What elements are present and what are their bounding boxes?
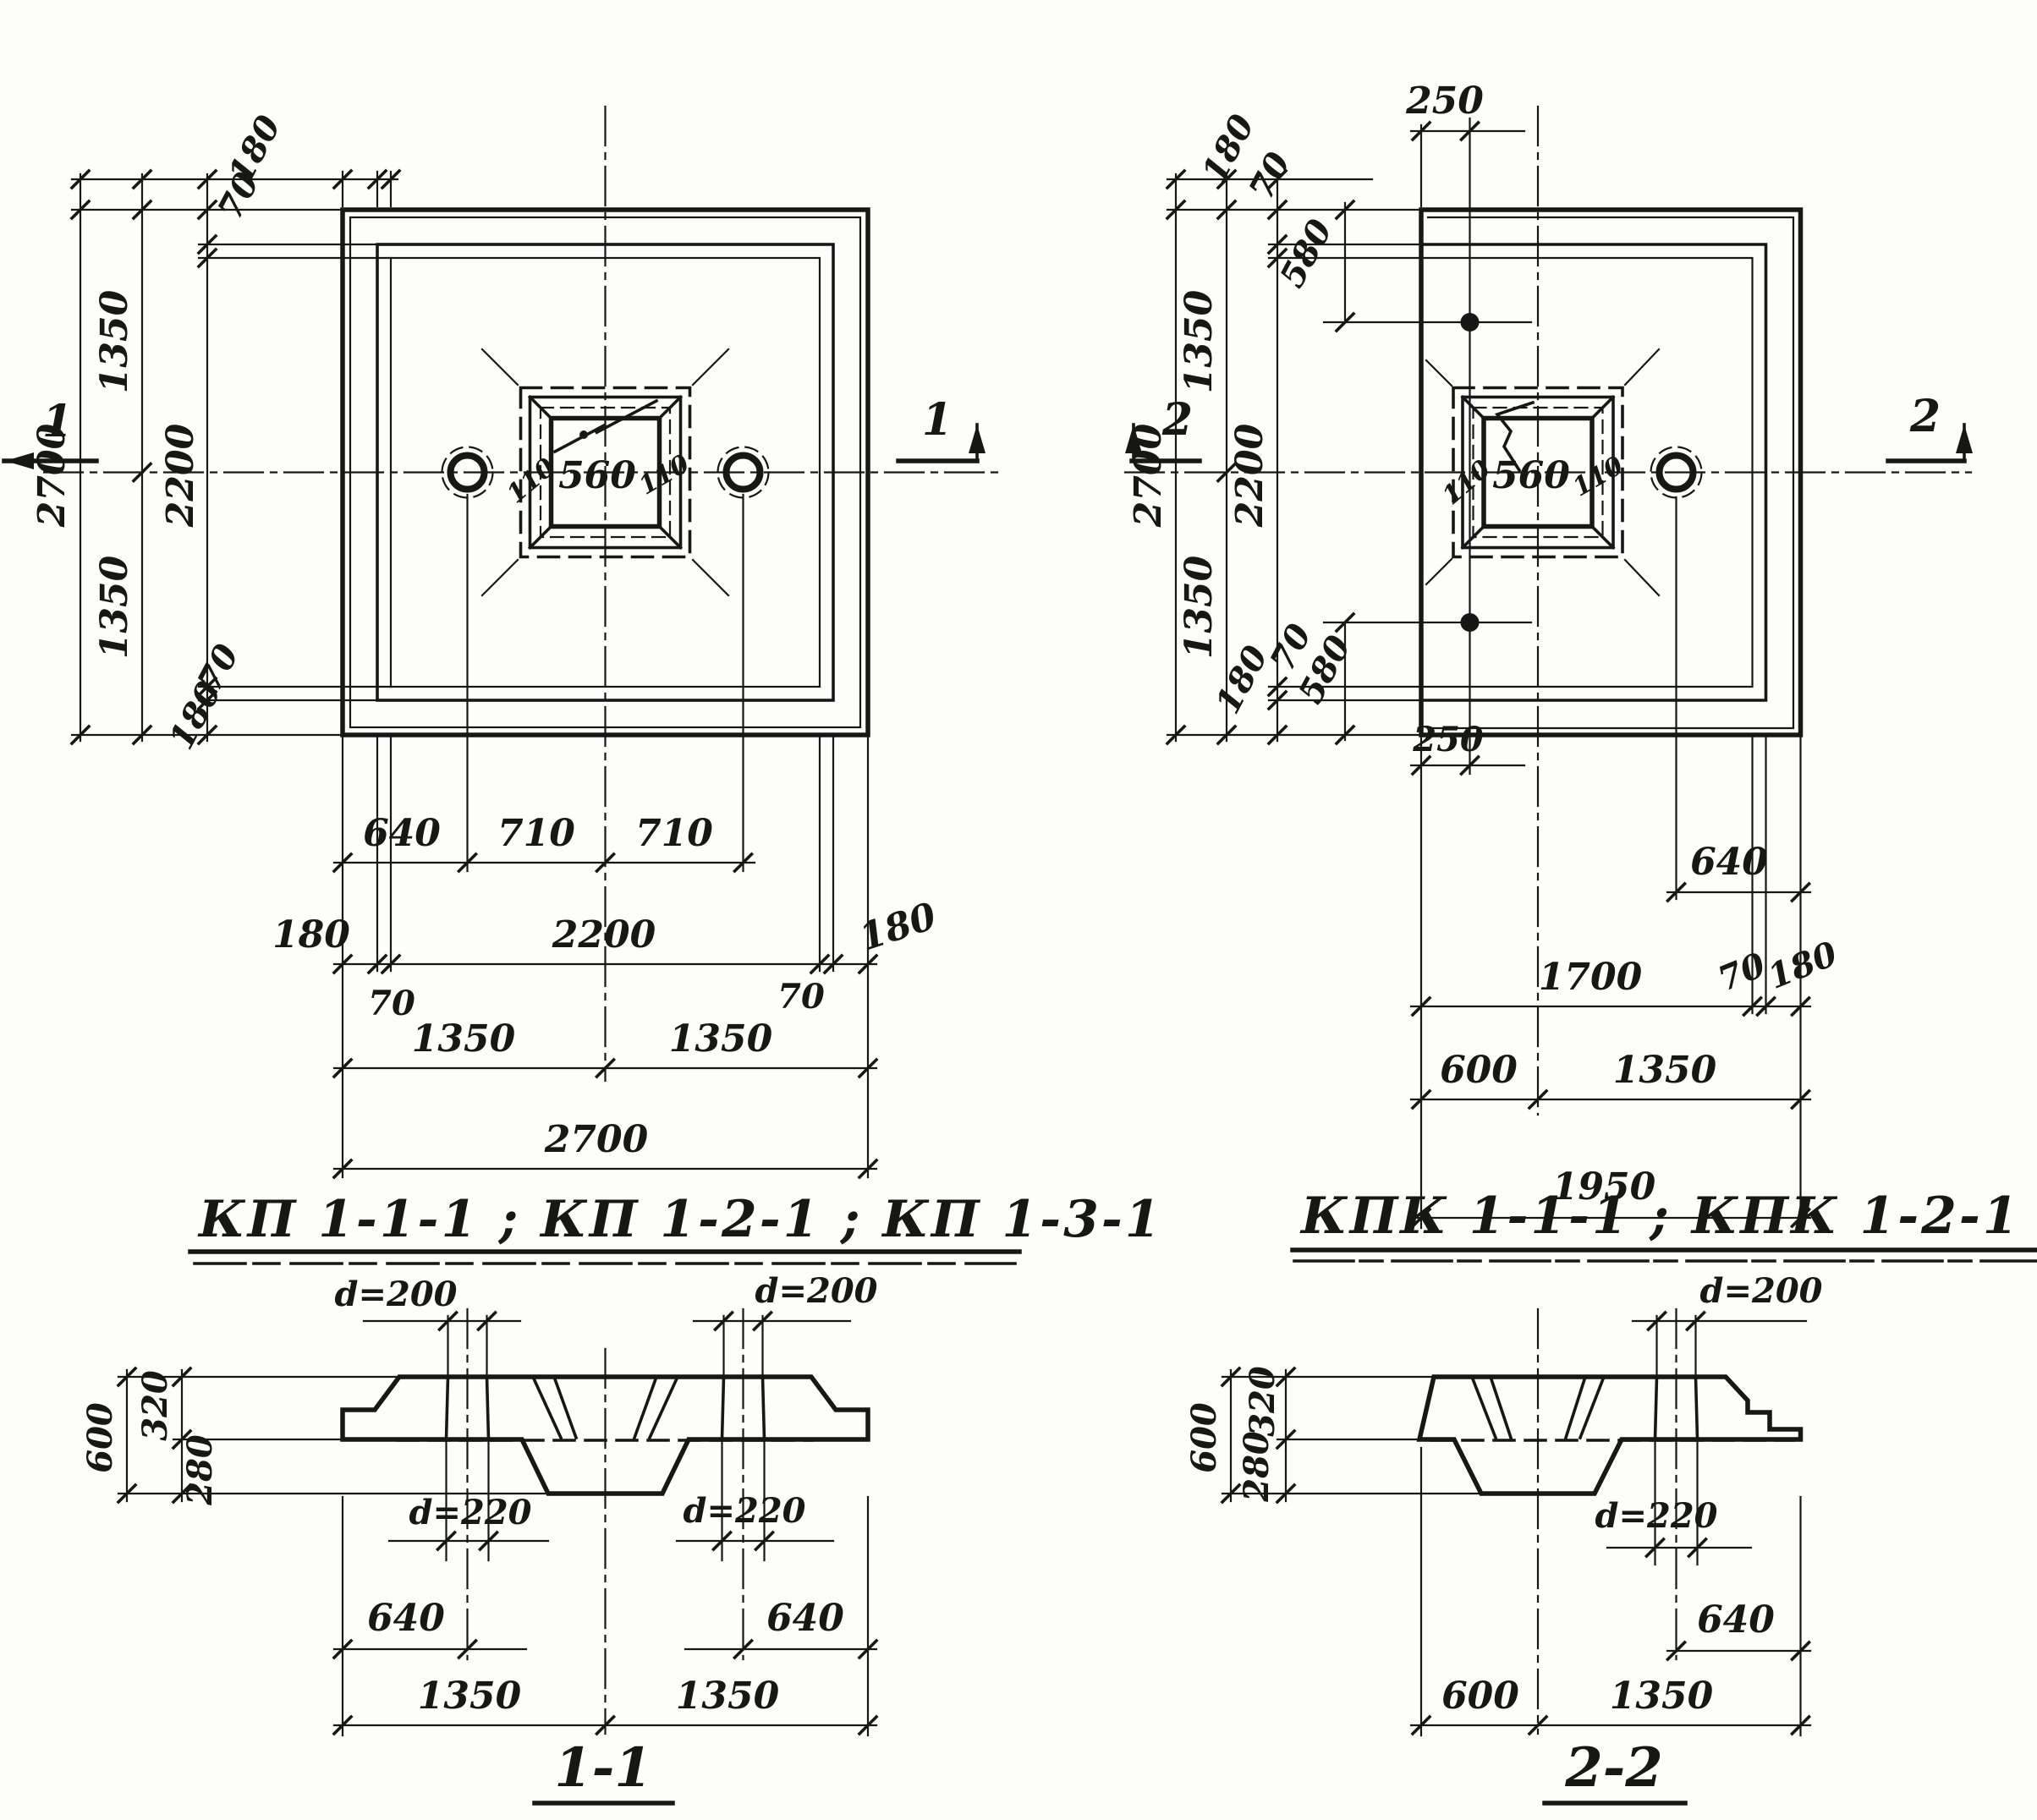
dim-label: 110 [634, 449, 695, 502]
title-kp: КП 1-1-1 ; КП 1-2-1 ; КП 1-3-1 [197, 1190, 1162, 1249]
dim-label: 320 [135, 1370, 175, 1441]
dim-label: 1350 [676, 1675, 780, 1718]
title-kpk: КПК 1-1-1 ; КПК 1-2-1 ; КПК 1-3-1 [1299, 1187, 2037, 1246]
section-2-2-label: 2-2 [1564, 1736, 1663, 1800]
dim-label: 640 [766, 1597, 844, 1640]
section-2-2-dims: d=200 600 320 280 d=220 640 600 1350 [1184, 1271, 1823, 1735]
dim-label: d=200 [755, 1271, 878, 1311]
dim-label: 710 [497, 812, 575, 855]
dim-label: d=200 [335, 1275, 458, 1314]
dim-label: 110 [1568, 451, 1628, 503]
dim-label: 180 [1762, 934, 1842, 997]
plan-kpk-dims-top: 250 180 70 580 [1167, 79, 1524, 331]
dim-label: 560 [558, 454, 636, 497]
dim-label: 640 [1690, 841, 1768, 884]
dim-label: 2200 [1228, 423, 1271, 528]
dim-label: 710 [635, 812, 713, 855]
dim-label: 1350 [1610, 1675, 1714, 1718]
dim-label: 640 [367, 1597, 445, 1640]
dim-label: 1350 [669, 1017, 773, 1061]
slab-profile [1419, 1377, 1801, 1494]
dim-label: 2200 [552, 913, 656, 957]
dim-label: 640 [363, 812, 441, 855]
dim-label: 560 [1492, 454, 1570, 497]
dim-label: 600 [1441, 1675, 1519, 1718]
plan-kp: 180 70 2700 1350 1350 2200 70 180 [4, 107, 998, 1177]
dim-label: 280 [180, 1434, 220, 1506]
drawing-canvas: 180 70 2700 1350 1350 2200 70 180 [0, 0, 2037, 1820]
dim-label: 2700 [544, 1118, 649, 1161]
section-mark-1-right: 1 [898, 394, 986, 461]
section-cut-digit: 1 [922, 394, 953, 446]
dim-label: 640 [1697, 1598, 1775, 1642]
dim-label: 1350 [93, 555, 136, 659]
dim-label: 180 [272, 913, 350, 957]
section-1-1-dims: d=200 d=200 600 320 280 d=220 d=220 [80, 1271, 878, 1735]
dim-label: 250 [1405, 79, 1484, 123]
dim-label: 1350 [412, 1017, 516, 1061]
dim-label: 1350 [418, 1675, 522, 1718]
section-2-2: d=200 600 320 280 d=220 640 600 1350 [1184, 1271, 1823, 1803]
dim-label: 250 [1412, 720, 1484, 759]
plan-kp-dims-left: 2700 1350 1350 2200 70 180 [30, 174, 391, 756]
dim-label: d=220 [1595, 1496, 1718, 1536]
plan-kpk-socket-labels: 110 560 110 [1437, 451, 1629, 511]
blueprint-sheet: 180 70 2700 1350 1350 2200 70 180 [0, 0, 2037, 1820]
section-1-1-label: 1-1 [554, 1736, 652, 1800]
dim-label: 1350 [1178, 555, 1221, 659]
plan-kp-dims-bottom: 640 710 710 180 2200 180 70 70 1350 1350… [272, 495, 942, 1177]
dim-label: 70 [368, 984, 415, 1023]
plan-kpk-dims-bottom-left: 180 70 580 250 [1208, 614, 1524, 1228]
dim-label: 1700 [1539, 956, 1643, 999]
plan-kp-centerlines [44, 107, 998, 1081]
dim-label: 70 [1241, 145, 1299, 206]
dim-label: 1350 [93, 289, 136, 393]
section-cut-digit: 2 [1909, 391, 1941, 442]
section-cut-digit: 1 [42, 396, 73, 447]
dim-label: 70 [777, 977, 825, 1017]
dim-label: 1350 [1178, 289, 1221, 393]
plan-kpk: 250 180 70 580 2700 1350 1350 [1125, 79, 1973, 1228]
section-mark-2-right: 2 [1888, 391, 1973, 461]
plan-kpk-dims-bottom: 640 1700 70 180 600 1350 1950 [1411, 497, 1843, 1228]
dim-label: 110 [1437, 454, 1497, 511]
dim-label: 600 [1184, 1402, 1224, 1473]
dim-label: d=200 [1700, 1271, 1823, 1311]
dim-label: 600 [80, 1402, 120, 1473]
dim-label: d=220 [684, 1491, 806, 1531]
dim-label: 70 [1712, 945, 1771, 999]
section-cut-digit: 2 [1161, 394, 1193, 446]
titles: КП 1-1-1 ; КП 1-2-1 ; КП 1-3-1 КПК 1-1-1… [190, 1187, 2037, 1264]
dim-label: 1350 [1613, 1049, 1717, 1092]
dim-label: 280 [1237, 1431, 1277, 1503]
section-1-1: d=200 d=200 600 320 280 d=220 d=220 [80, 1271, 878, 1803]
dim-label: 320 [1243, 1366, 1282, 1437]
dim-label: 2200 [159, 423, 202, 528]
dim-label: 600 [1440, 1049, 1518, 1092]
dim-label: d=220 [409, 1493, 532, 1532]
